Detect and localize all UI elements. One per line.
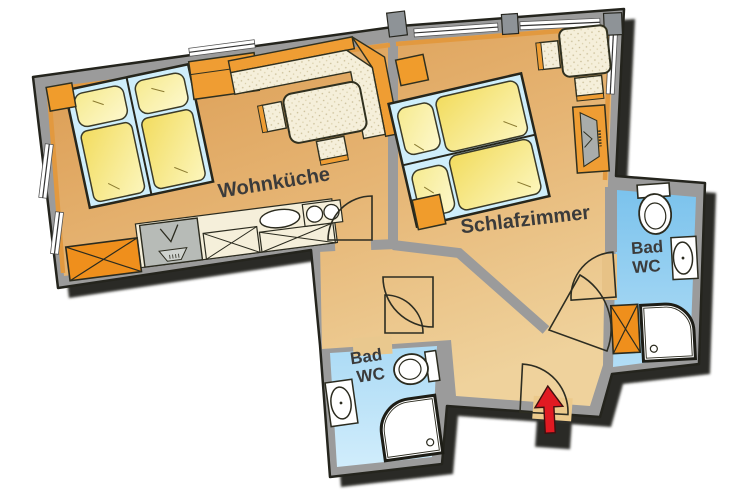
washbasin-icon xyxy=(671,236,698,279)
floorplan-canvas: Wohnküche Schlafzimmer Bad WC Bad WC xyxy=(0,0,750,500)
stool-icon xyxy=(258,102,287,133)
room-label-bath-right: Bad WC xyxy=(630,237,665,277)
nightstand xyxy=(46,83,76,111)
nightstand xyxy=(412,194,446,229)
floorplan-svg: Wohnküche Schlafzimmer Bad WC Bad WC xyxy=(0,0,750,500)
bath-left-line2: WC xyxy=(355,364,386,387)
hall-wall-stub-left xyxy=(318,246,335,247)
hall-wall-stub-right xyxy=(371,244,397,245)
toilet-icon xyxy=(637,183,672,235)
double-bed-icon xyxy=(65,64,213,208)
nightstand xyxy=(396,54,429,85)
kitchen-sink-icon xyxy=(140,218,203,267)
stool-icon xyxy=(316,136,348,165)
bath-right-line1: Bad xyxy=(630,237,663,258)
washbasin-icon xyxy=(325,379,358,426)
stool-icon xyxy=(575,75,604,96)
tv-sideboard-icon xyxy=(573,105,610,173)
wardrobe-icon xyxy=(611,304,640,353)
bath-right-line2: WC xyxy=(632,256,662,277)
